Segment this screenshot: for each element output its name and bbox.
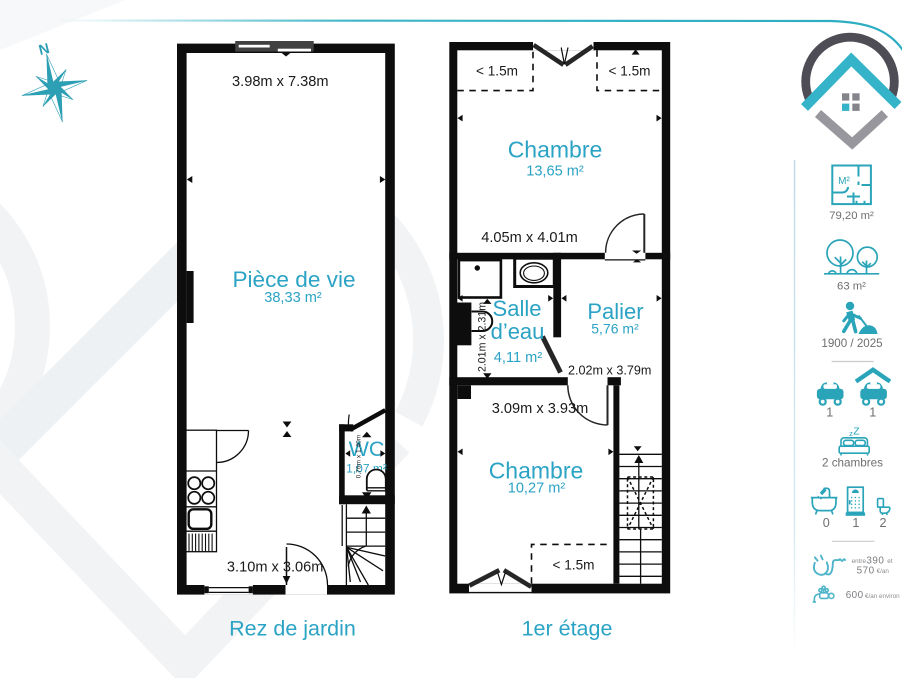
svg-text:0,76m x 1,40m: 0,76m x 1,40m bbox=[355, 434, 362, 478]
svg-text:0: 0 bbox=[823, 516, 830, 530]
svg-text:Salle: Salle bbox=[493, 296, 542, 321]
svg-text:2.01m x 2.31m: 2.01m x 2.31m bbox=[477, 302, 489, 372]
svg-text:63 m²: 63 m² bbox=[837, 280, 866, 292]
svg-text:1er étage: 1er étage bbox=[522, 617, 613, 641]
svg-text:3.98m x 7.38m: 3.98m x 7.38m bbox=[232, 74, 329, 90]
svg-text:Chambre: Chambre bbox=[508, 137, 603, 163]
svg-text:4,11 m²: 4,11 m² bbox=[494, 350, 543, 366]
svg-text:1: 1 bbox=[826, 406, 833, 420]
svg-text:79,20 m²: 79,20 m² bbox=[829, 210, 874, 222]
svg-text:€/an: €/an bbox=[877, 568, 890, 575]
svg-text:1: 1 bbox=[869, 406, 876, 420]
svg-text:< 1.5m: < 1.5m bbox=[609, 64, 651, 79]
svg-text:Rez de jardin: Rez de jardin bbox=[229, 617, 356, 641]
svg-text:38,33 m²: 38,33 m² bbox=[264, 290, 322, 306]
svg-text:1900 / 2025: 1900 / 2025 bbox=[821, 337, 882, 350]
svg-text:5,76 m²: 5,76 m² bbox=[591, 321, 639, 337]
svg-text:4.05m x 4.01m: 4.05m x 4.01m bbox=[481, 230, 578, 246]
svg-text:10,27 m²: 10,27 m² bbox=[508, 481, 566, 497]
svg-text:d’eau: d’eau bbox=[491, 319, 545, 344]
svg-text:entre: entre bbox=[852, 558, 867, 565]
svg-text:570: 570 bbox=[857, 565, 875, 576]
svg-text:1: 1 bbox=[852, 516, 859, 530]
svg-text:Z: Z bbox=[853, 426, 860, 438]
svg-text:et: et bbox=[887, 558, 893, 565]
svg-text:2.02m x 3.79m: 2.02m x 3.79m bbox=[568, 364, 651, 378]
svg-text:600: 600 bbox=[846, 590, 864, 601]
svg-text:Pièce de vie: Pièce de vie bbox=[232, 267, 355, 292]
svg-text:3.10m x 3.06m: 3.10m x 3.06m bbox=[227, 560, 324, 576]
svg-text:N: N bbox=[37, 41, 51, 59]
svg-text:€/an environ: €/an environ bbox=[865, 593, 900, 600]
svg-text:< 1.5m: < 1.5m bbox=[476, 64, 518, 79]
svg-text:2 chambres: 2 chambres bbox=[822, 457, 883, 470]
svg-text:3.09m x 3.93m: 3.09m x 3.93m bbox=[492, 401, 589, 417]
svg-text:2: 2 bbox=[879, 516, 886, 530]
svg-text:M²: M² bbox=[838, 176, 850, 187]
svg-text:< 1.5m: < 1.5m bbox=[553, 558, 595, 573]
svg-text:13,65 m²: 13,65 m² bbox=[526, 164, 584, 180]
svg-text:WC: WC bbox=[349, 437, 385, 461]
